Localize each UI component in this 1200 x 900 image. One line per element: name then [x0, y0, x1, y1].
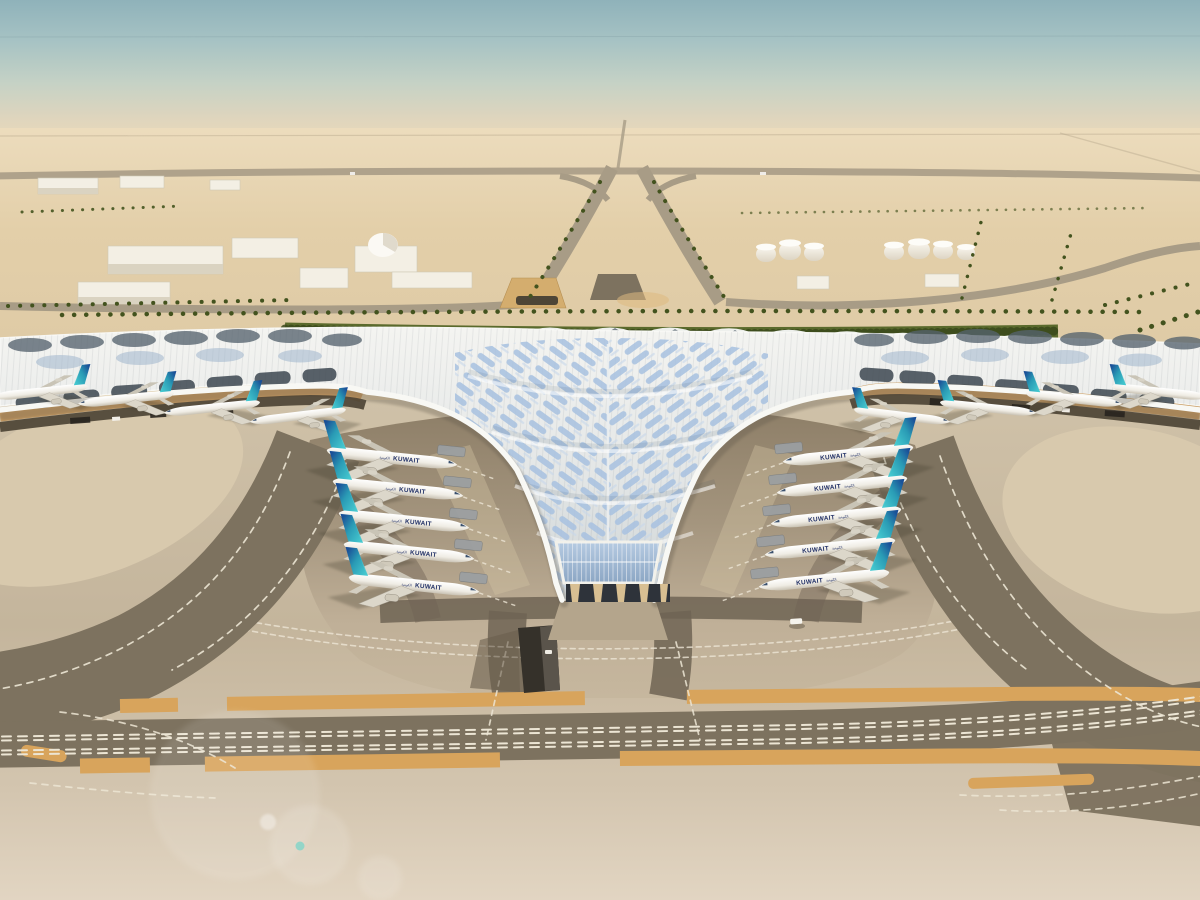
rendering-canvas: الكويتية KUWAIT الكويتية KUWAIT الكويتية…	[0, 0, 1200, 900]
car	[350, 172, 355, 175]
apron-lane	[668, 612, 673, 697]
car	[760, 172, 766, 175]
sky	[0, 0, 1200, 140]
service-car	[545, 650, 552, 654]
underpass-opening	[516, 296, 558, 305]
sky-gradient	[0, 0, 1200, 140]
airport-aerial-rendering: الكويتية KUWAIT الكويتية KUWAIT الكويتية…	[0, 0, 1200, 900]
flare-dot	[296, 842, 305, 851]
sand-mound	[617, 292, 669, 308]
apex-facade	[556, 542, 670, 602]
service-van	[790, 618, 802, 624]
